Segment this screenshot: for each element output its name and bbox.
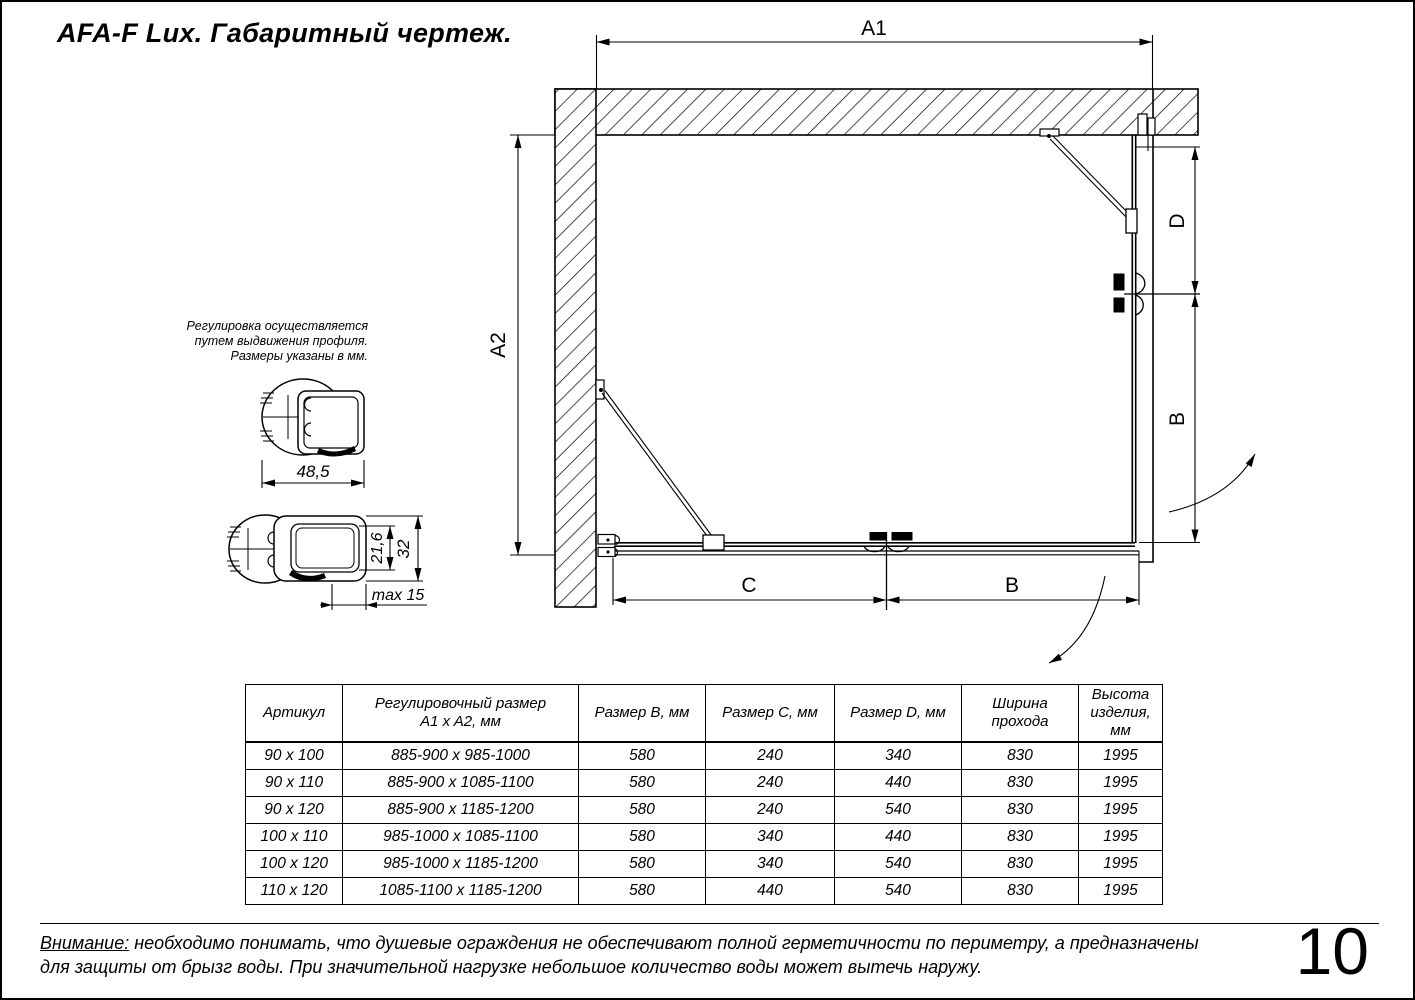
- table-cell: 580: [579, 824, 706, 851]
- table-cell: 1085-1100 x 1185-1200: [343, 878, 579, 905]
- table-row: 90 x 110 885-900 x 1085-1100 580 240 440…: [246, 770, 1163, 797]
- table-header-adjust-size: Регулировочный размер A1 x A2, мм: [343, 685, 579, 743]
- table-row: 100 x 120 985-1000 x 1185-1200 580 340 5…: [246, 851, 1163, 878]
- table-header-article: Артикул: [246, 685, 343, 743]
- table-cell: 90 x 110: [246, 770, 343, 797]
- right-support-brace: [1040, 129, 1137, 233]
- dimension-a2: [510, 135, 555, 555]
- table-cell: 1995: [1079, 770, 1163, 797]
- table-cell: 1995: [1079, 824, 1163, 851]
- table-cell: 440: [835, 770, 962, 797]
- wall-hatching: [555, 89, 1198, 607]
- table-cell: 830: [962, 878, 1079, 905]
- right-door-glass: [1132, 89, 1153, 605]
- footer-divider: [40, 923, 1379, 924]
- left-support-brace: [596, 380, 724, 550]
- table-cell: 580: [579, 851, 706, 878]
- table-cell: 100 x 110: [246, 824, 343, 851]
- table-cell: 540: [835, 797, 962, 824]
- warning-line2: для защиты от брызг воды. При значительн…: [40, 957, 982, 977]
- table-header-height: Высота изделия, мм: [1079, 685, 1163, 743]
- dim-label-c: C: [741, 574, 756, 597]
- dim-label-a2: A2: [487, 332, 510, 358]
- dim-label-profile-outer: 32: [394, 539, 413, 558]
- table-cell: 580: [579, 797, 706, 824]
- table-header-size-b: Размер B, мм: [579, 685, 706, 743]
- table-cell: 1995: [1079, 742, 1163, 770]
- table-row: 110 x 120 1085-1100 x 1185-1200 580 440 …: [246, 878, 1163, 905]
- dim-label-a1: A1: [861, 17, 887, 40]
- dimension-d-b-right: [1136, 147, 1200, 543]
- table-cell: 580: [579, 770, 706, 797]
- table-cell: 580: [579, 742, 706, 770]
- table-cell: 1995: [1079, 878, 1163, 905]
- table-cell: 830: [962, 797, 1079, 824]
- dimension-c-b-bottom: [613, 558, 1139, 605]
- door-swing-arcs: [1049, 454, 1255, 663]
- warning-text: Внимание: необходимо понимать, что душев…: [40, 931, 1290, 980]
- table-cell: 540: [835, 851, 962, 878]
- table-cell: 1995: [1079, 851, 1163, 878]
- table-cell: 90 x 100: [246, 742, 343, 770]
- table-cell: 440: [835, 824, 962, 851]
- table-cell: 885-900 x 985-1000: [343, 742, 579, 770]
- dim-label-b-right: B: [1166, 412, 1189, 426]
- front-door-handle: [864, 532, 912, 610]
- table-cell: 340: [835, 742, 962, 770]
- dim-label-profile-extension: max 15: [372, 587, 425, 604]
- table-cell: 885-900 x 1085-1100: [343, 770, 579, 797]
- table-cell: 240: [706, 770, 835, 797]
- table-row: 90 x 100 885-900 x 985-1000 580 240 340 …: [246, 742, 1163, 770]
- table-cell: 100 x 120: [246, 851, 343, 878]
- table-cell: 110 x 120: [246, 878, 343, 905]
- size-spec-table: Артикул Регулировочный размер A1 x A2, м…: [245, 684, 1163, 905]
- table-header-size-c: Размер C, мм: [706, 685, 835, 743]
- table-cell: 830: [962, 851, 1079, 878]
- table-cell: 240: [706, 797, 835, 824]
- table-cell: 1995: [1079, 797, 1163, 824]
- table-cell: 340: [706, 851, 835, 878]
- table-cell: 340: [706, 824, 835, 851]
- warning-line1: необходимо понимать, что душевые огражде…: [129, 933, 1198, 953]
- table-cell: 885-900 x 1185-1200: [343, 797, 579, 824]
- front-panel-glass: [599, 543, 1139, 555]
- right-door-handle: [1114, 273, 1200, 315]
- table-cell: 540: [835, 878, 962, 905]
- dim-label-d: D: [1166, 213, 1189, 228]
- table-row: 100 x 110 985-1000 x 1085-1100 580 340 4…: [246, 824, 1163, 851]
- table-cell: 830: [962, 824, 1079, 851]
- table-header-size-d: Размер D, мм: [835, 685, 962, 743]
- table-header-pass-width: Ширина прохода: [962, 685, 1079, 743]
- warning-label: Внимание:: [40, 933, 129, 953]
- dim-label-b-bottom: B: [1005, 574, 1019, 597]
- table-cell: 440: [706, 878, 835, 905]
- dim-label-profile-inner: 21,6: [369, 532, 386, 564]
- table-cell: 830: [962, 770, 1079, 797]
- table-cell: 985-1000 x 1085-1100: [343, 824, 579, 851]
- table-row: 90 x 120 885-900 x 1185-1200 580 240 540…: [246, 797, 1163, 824]
- table-cell: 985-1000 x 1185-1200: [343, 851, 579, 878]
- table-cell: 580: [579, 878, 706, 905]
- table-header-row: Артикул Регулировочный размер A1 x A2, м…: [246, 685, 1163, 743]
- page-number: 10: [1296, 918, 1369, 984]
- table-cell: 240: [706, 742, 835, 770]
- dimension-a1: [597, 35, 1153, 89]
- table-cell: 830: [962, 742, 1079, 770]
- catalog-page: AFA-F Lux. Габаритный чертеж. Регулировк…: [0, 0, 1415, 1000]
- table-cell: 90 x 120: [246, 797, 343, 824]
- dim-label-profile-width: 48,5: [296, 462, 330, 481]
